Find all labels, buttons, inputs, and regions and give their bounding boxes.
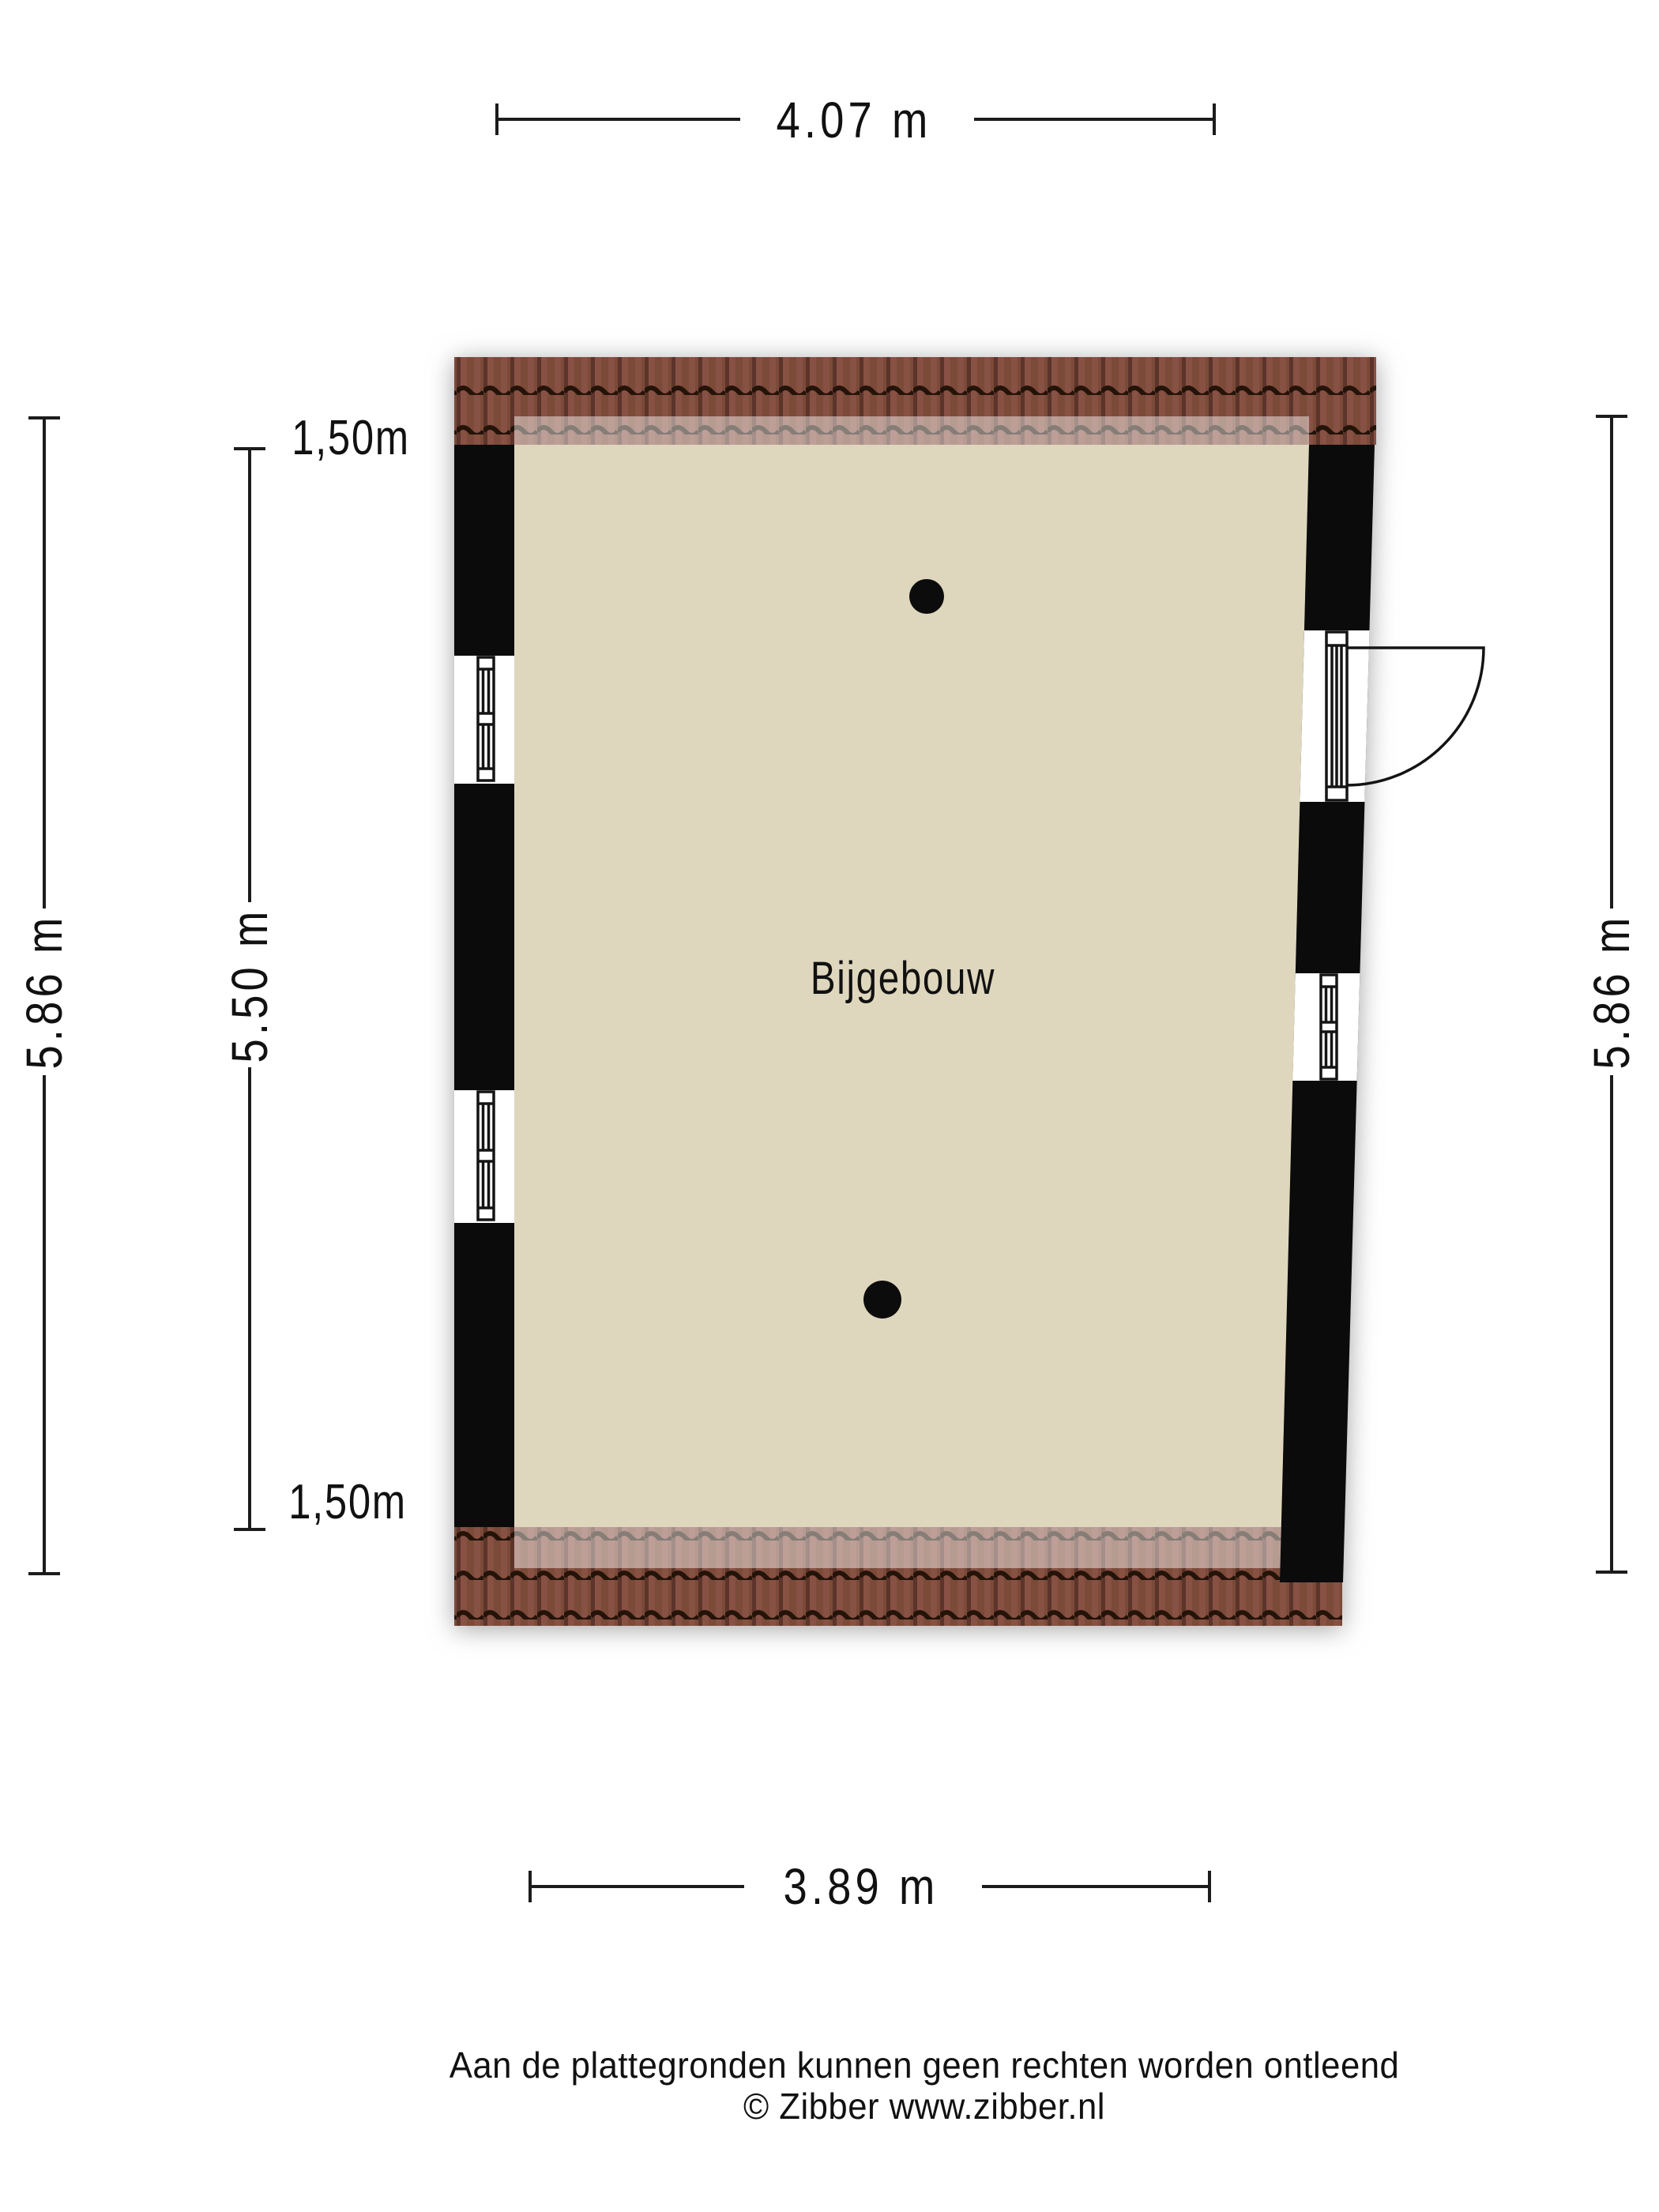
footer-copyright: © Zibber www.zibber.nl [324, 2084, 1525, 2128]
window-left-lower [454, 1090, 514, 1223]
window-right [1292, 973, 1360, 1081]
wall-left [454, 445, 514, 1527]
dimension-label-left-inner: 5.50 m [222, 878, 277, 1093]
offset-label-bottom: 1,50m [270, 1474, 426, 1529]
door-right [1300, 630, 1484, 802]
roof-band-top [454, 357, 1376, 445]
room-label: Bijgebouw [773, 950, 1033, 1006]
floorplan-page: { "plan": { "room_label": "Bijgebouw" },… [0, 0, 1659, 2212]
dimension-label-right: 5.86 m [1584, 884, 1639, 1099]
dimension-label-left-outer: 5.86 m [17, 884, 72, 1099]
window-left-upper [454, 656, 514, 784]
column-dot-upper [909, 579, 944, 614]
column-dot-lower [863, 1281, 901, 1319]
dimension-label-top: 4.07 m [733, 88, 975, 152]
offset-label-top: 1,50m [273, 410, 429, 465]
dimension-label-bottom: 3.89 m [740, 1855, 982, 1918]
roof-band-bottom [454, 1527, 1342, 1626]
footer-disclaimer: Aan de plattegronden kunnen geen rechten… [324, 2043, 1525, 2087]
